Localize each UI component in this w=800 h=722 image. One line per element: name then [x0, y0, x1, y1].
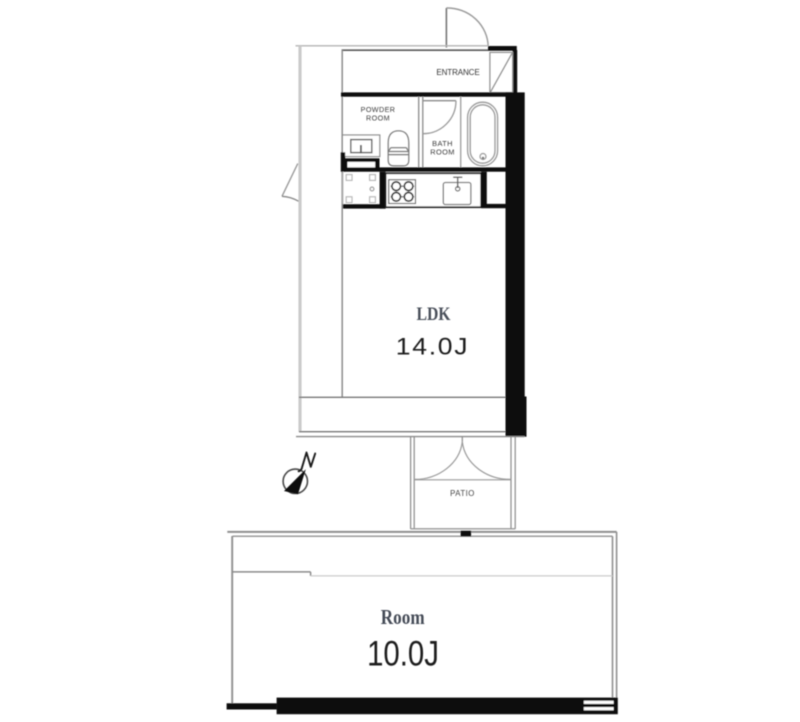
svg-text:10.0J: 10.0J	[367, 634, 439, 673]
svg-text:ROOM: ROOM	[430, 147, 455, 156]
svg-text:ROOM: ROOM	[366, 114, 390, 123]
svg-text:Room: Room	[381, 606, 425, 629]
svg-text:14.0J: 14.0J	[396, 334, 469, 361]
svg-text:LDK: LDK	[416, 302, 450, 324]
svg-text:PATIO: PATIO	[450, 489, 475, 498]
svg-text:ENTRANCE: ENTRANCE	[436, 68, 479, 77]
